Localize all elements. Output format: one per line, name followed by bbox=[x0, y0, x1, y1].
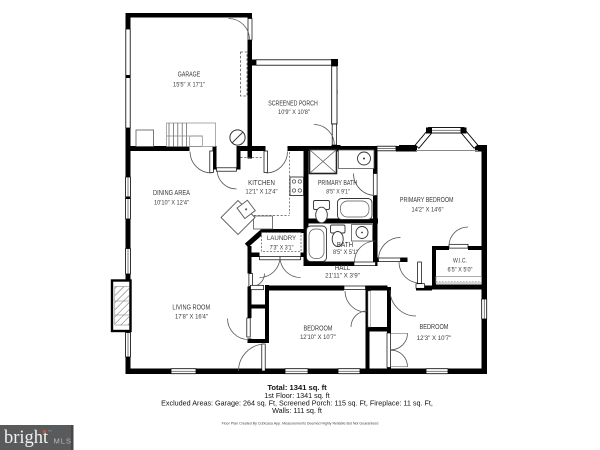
svg-text:17'8" X 16'4": 17'8" X 16'4" bbox=[175, 313, 208, 320]
svg-text:HALL: HALL bbox=[335, 265, 351, 272]
svg-text:BATH: BATH bbox=[337, 242, 354, 249]
svg-text:BEDROOM: BEDROOM bbox=[420, 323, 449, 331]
svg-text:8'5" X 5'1": 8'5" X 5'1" bbox=[333, 250, 358, 256]
svg-text:MLS: MLS bbox=[54, 437, 72, 446]
svg-text:12'3" X 10'7": 12'3" X 10'7" bbox=[417, 335, 451, 342]
svg-text:LIVING ROOM: LIVING ROOM bbox=[172, 304, 210, 312]
svg-text:10'10" X 12'4": 10'10" X 12'4" bbox=[154, 199, 189, 206]
svg-text:SCREENED PORCH: SCREENED PORCH bbox=[268, 100, 317, 108]
svg-text:12'10" X 10'7": 12'10" X 10'7" bbox=[300, 334, 336, 341]
svg-text:21'11" X 3'9": 21'11" X 3'9" bbox=[325, 272, 360, 279]
svg-text:BEDROOM: BEDROOM bbox=[304, 325, 333, 333]
svg-text:PRIMARY BEDROOM: PRIMARY BEDROOM bbox=[400, 196, 454, 204]
svg-text:7'3" X 3'1": 7'3" X 3'1" bbox=[270, 245, 294, 252]
svg-text:KITCHEN: KITCHEN bbox=[248, 180, 275, 187]
svg-text:bright: bright bbox=[4, 428, 49, 448]
svg-text:15'5" X 17'1": 15'5" X 17'1" bbox=[173, 81, 205, 88]
svg-text:™: ™ bbox=[48, 430, 52, 434]
svg-text:DINING AREA: DINING AREA bbox=[153, 190, 191, 198]
svg-text:8'5" X 9'1": 8'5" X 9'1" bbox=[326, 189, 350, 196]
svg-text:PRIMARY BATH: PRIMARY BATH bbox=[318, 179, 357, 187]
svg-text:Floor Plan Created By Cubicasa: Floor Plan Created By Cubicasa App. Meas… bbox=[222, 422, 379, 426]
svg-text:10'9" X 10'8": 10'9" X 10'8" bbox=[278, 109, 310, 116]
svg-text:Walls: 111 sq. ft: Walls: 111 sq. ft bbox=[272, 406, 322, 415]
svg-text:W.I.C.: W.I.C. bbox=[453, 258, 467, 265]
svg-text:12'1" X 12'4": 12'1" X 12'4" bbox=[246, 188, 278, 195]
svg-text:6'5" X 5'0": 6'5" X 5'0" bbox=[447, 267, 472, 273]
svg-text:GARAGE: GARAGE bbox=[178, 71, 200, 79]
svg-text:LAUNDRY: LAUNDRY bbox=[267, 235, 297, 242]
svg-text:14'2" X 14'6": 14'2" X 14'6" bbox=[412, 206, 444, 213]
